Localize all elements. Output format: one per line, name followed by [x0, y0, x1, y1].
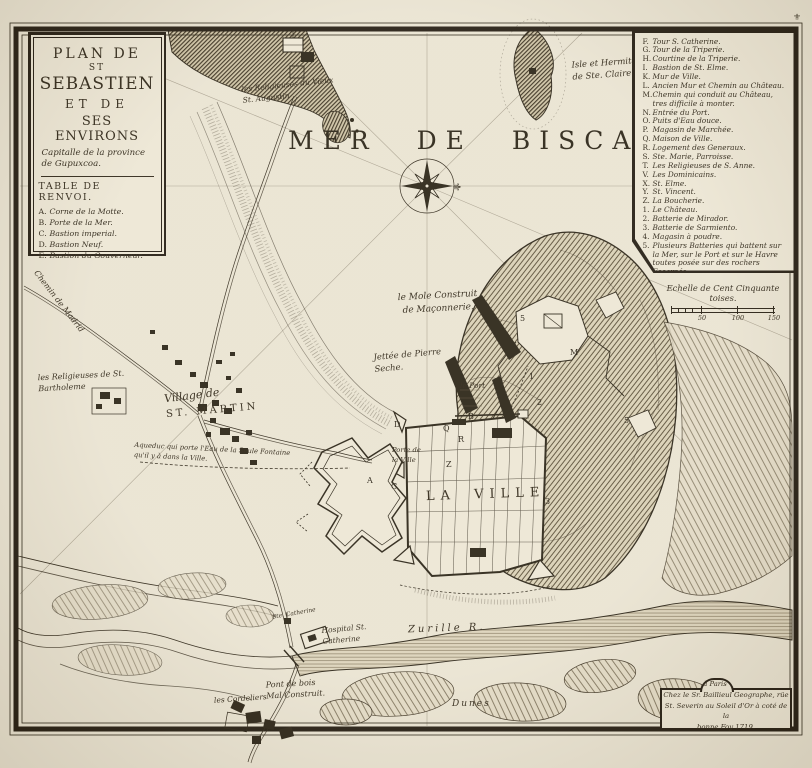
label-porte-de-la-ville: Porte de la Ville [392, 446, 421, 465]
map-subtitle: Capitalle de la province de Gupuxcoa. [39, 148, 156, 171]
label-le-port: le Port [460, 381, 485, 392]
publisher-place: à Paris [700, 680, 730, 688]
label-zurille-river: Zurille R. [408, 621, 486, 638]
map-title-line: St [39, 63, 156, 73]
map-marker: Z [446, 460, 452, 469]
table-de-renvoi-header: Table de Renvoi. [39, 181, 156, 203]
publisher-line: St. Severin au Soleil d'Or à coté de la [662, 701, 790, 722]
title-cartouche: Plan de St Sebastien et de Ses Environs … [28, 32, 166, 256]
east-hills-art [662, 322, 792, 595]
label-hospital: Hospital St. Catherine [321, 622, 368, 647]
map-marker: 5 [520, 314, 525, 323]
scale-bar-graphic: 50 100 150 [671, 306, 775, 320]
antique-map-page: { "palette": {"paper":"#e9e3d2","ink":"#… [0, 0, 812, 768]
scale-number: 50 [698, 314, 706, 322]
publisher-line: bonne Foy 1719. [662, 722, 790, 733]
map-marker: C [391, 482, 397, 491]
map-marker: 2 [537, 398, 542, 407]
label-religieuses-bartholeme: les Religieuses de St. Bartholeme [37, 368, 125, 395]
label-pont-de-bois: Pont de bois Mal Construit. [265, 676, 325, 701]
compass-rose: ⚜ [400, 159, 463, 213]
map-marker: 3 [545, 497, 550, 506]
scale-bar: Echelle de Cent Cinquante toises. 50 100… [652, 283, 794, 320]
map-title-line: et de [39, 97, 156, 111]
map-marker: A [367, 476, 373, 485]
legend-cartouche: F.Tour S. Catherine. G.Tour de la Triper… [632, 30, 796, 273]
map-marker: 1 [529, 372, 534, 381]
renvoi-item: D.Bastion Neuf. [39, 239, 156, 250]
renvoi-item: E.Bastion du Gouverneur. [39, 250, 156, 261]
renvoi-item: A.Corne de la Motte. [39, 206, 156, 217]
map-marker: B [468, 412, 474, 421]
scale-caption: Echelle de Cent Cinquante toises. [652, 283, 794, 303]
map-marker: D [394, 420, 400, 429]
legend-item: M.Chemin qui conduit au Château, tres di… [643, 91, 790, 109]
label-dunes: Dunes [452, 698, 491, 711]
compass-fleur-icon: ⚜ [450, 182, 463, 192]
estuary-art [18, 556, 296, 700]
renvoi-item: C.Bastion imperial. [39, 228, 156, 239]
map-marker: Q [443, 424, 450, 433]
island-ste-claire-art [500, 19, 566, 129]
scale-number: 100 [732, 314, 744, 322]
map-marker: 5 [624, 416, 629, 425]
scale-number: 150 [768, 314, 780, 322]
publisher-cartouche: à Paris Chez le Sr. Baillieul Geographe,… [660, 688, 792, 730]
map-title-line: Ses Environs [39, 114, 156, 144]
map-title-line: Sebastien [39, 74, 156, 94]
legend-item: 5.Plusieurs Batteries qui battent sur la… [643, 242, 790, 278]
cartouche-divider [41, 176, 154, 177]
corner-fleur-icon: ⚜ [793, 13, 801, 23]
map-marker: M [570, 348, 578, 357]
renvoi-item: B.Porte de la Mer. [39, 217, 156, 228]
map-marker: R [458, 435, 464, 444]
sea-name-label: Mer de Biscaye [288, 126, 691, 155]
label-mole: le Mole Construit de Maçonnerie. [397, 288, 478, 317]
map-title-line: Plan de [39, 46, 156, 62]
title-cartouche-inner: Plan de St Sebastien et de Ses Environs … [31, 35, 164, 254]
